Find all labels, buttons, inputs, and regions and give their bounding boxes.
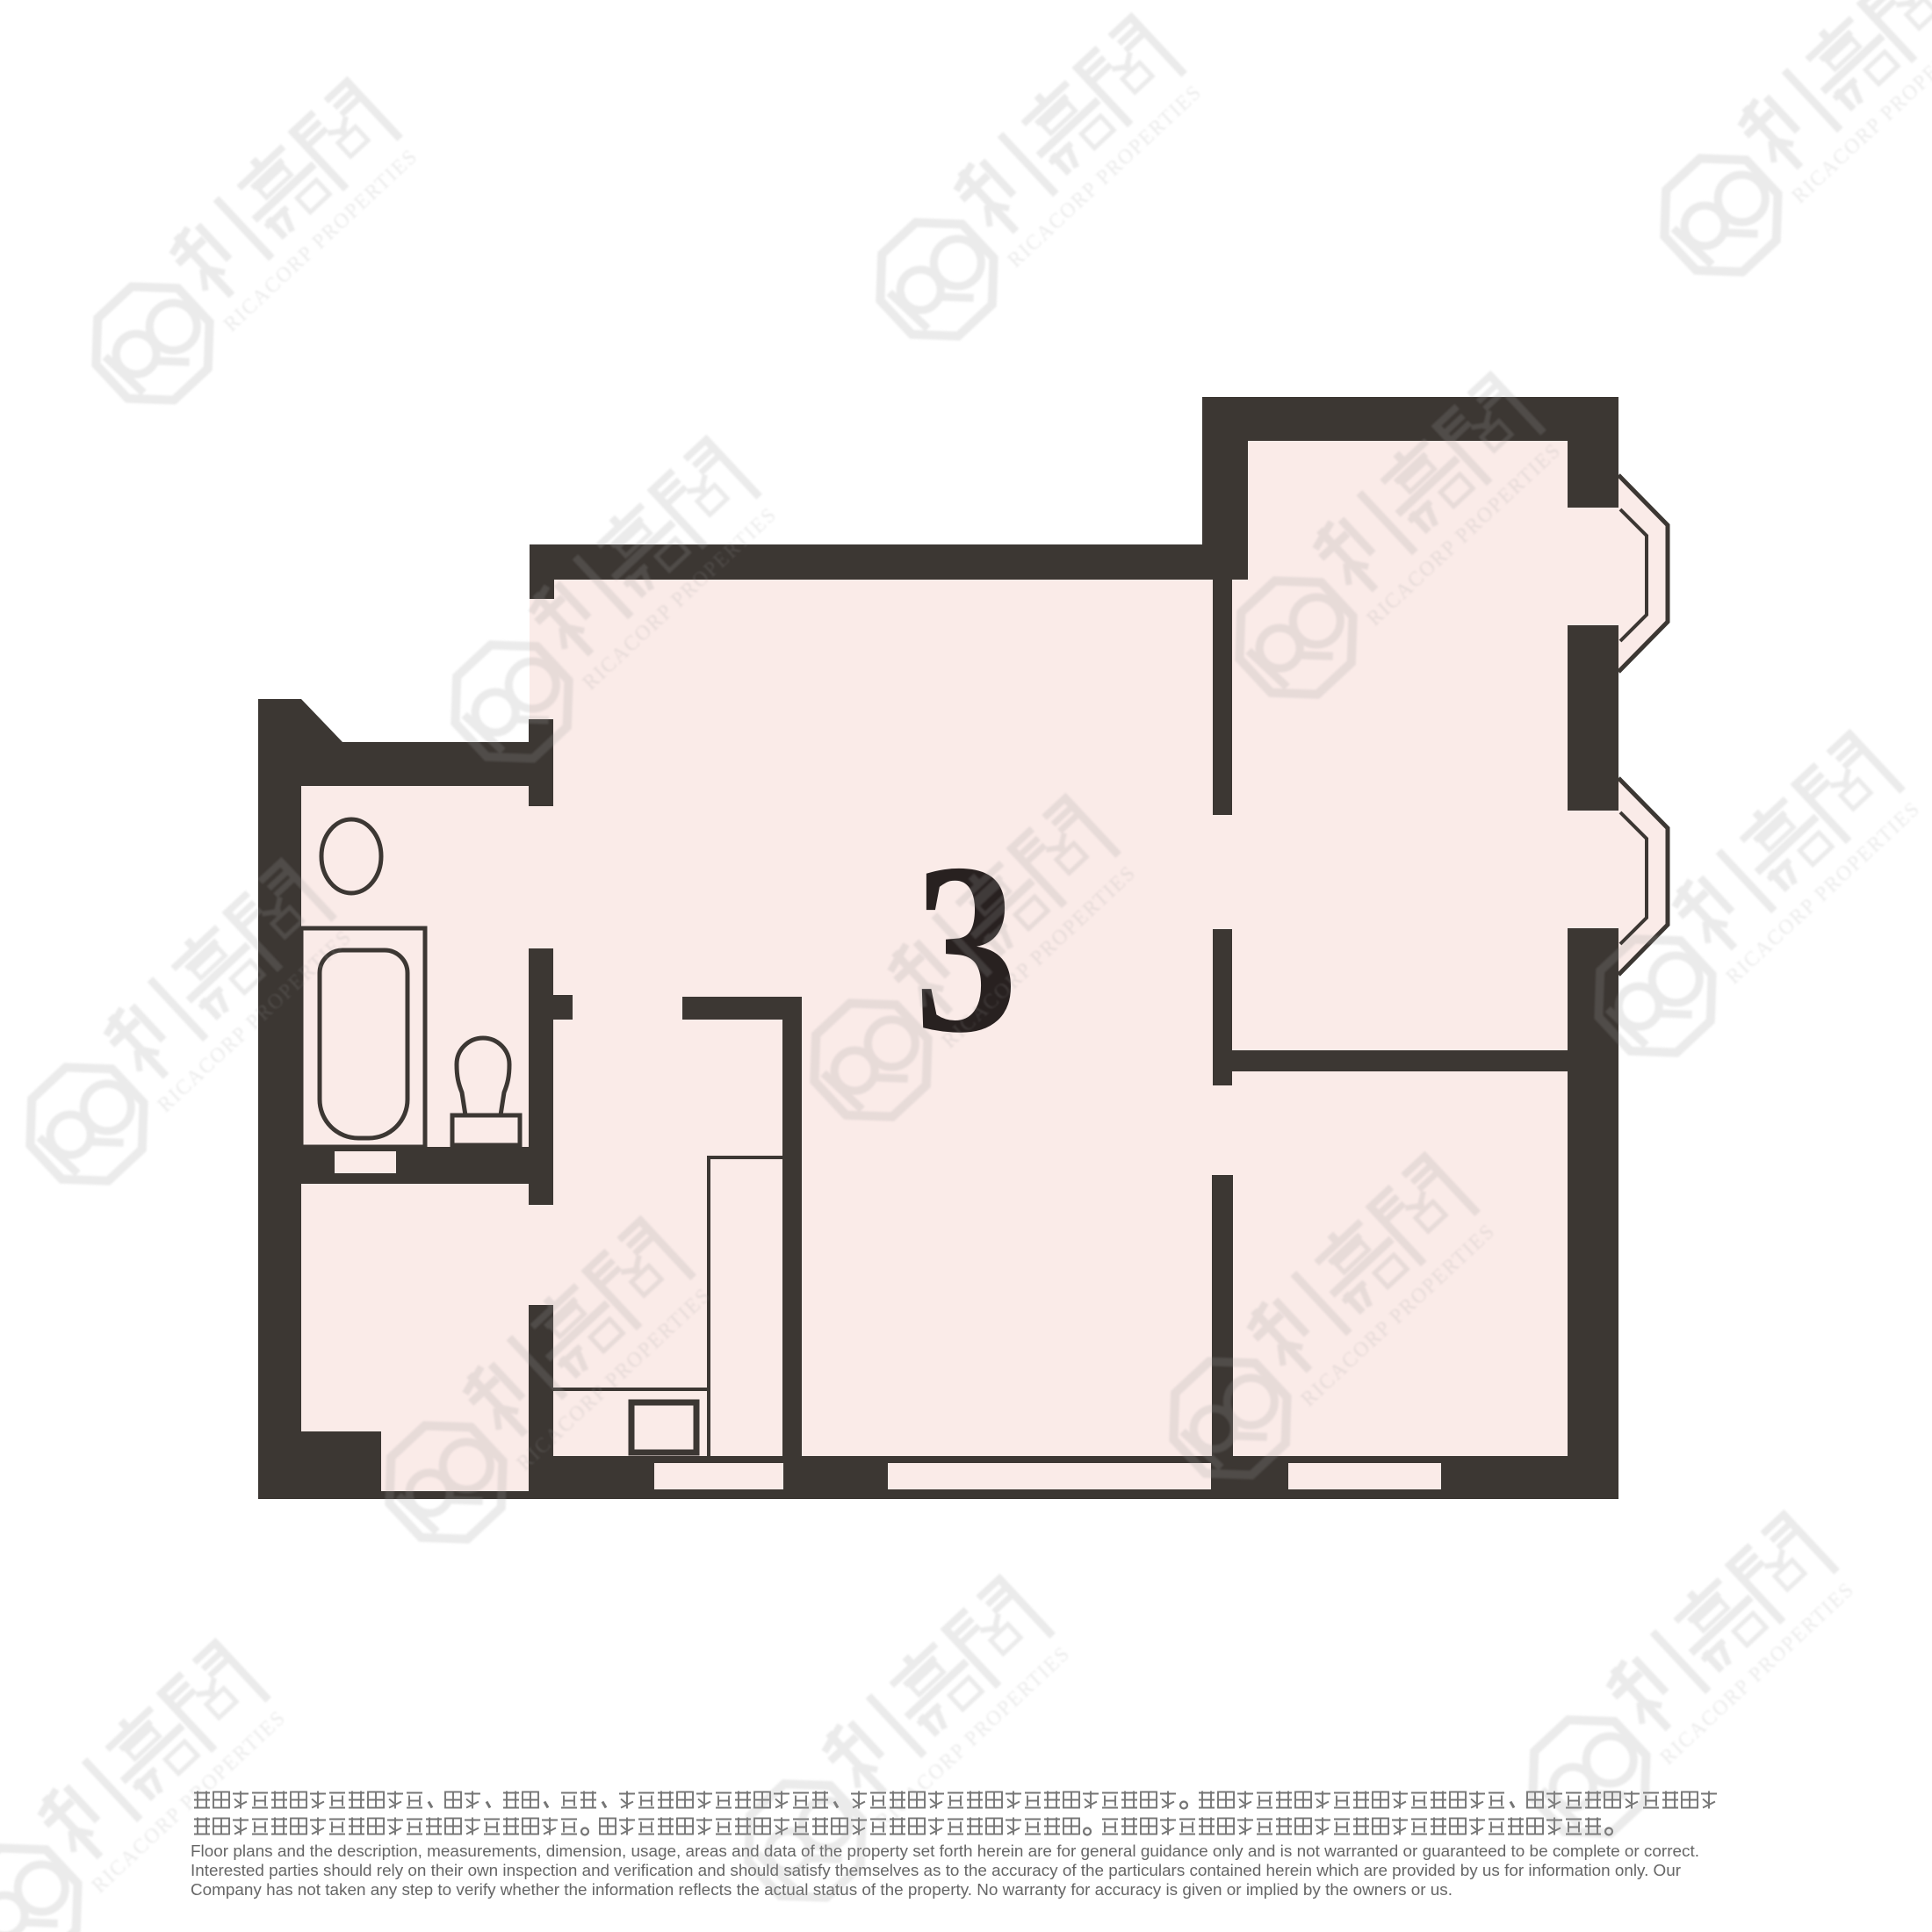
svg-text:Interested parties should rely: Interested parties should rely on their … xyxy=(191,1861,1681,1879)
svg-text:Floor plans and the descriptio: Floor plans and the description, measure… xyxy=(191,1842,1699,1860)
